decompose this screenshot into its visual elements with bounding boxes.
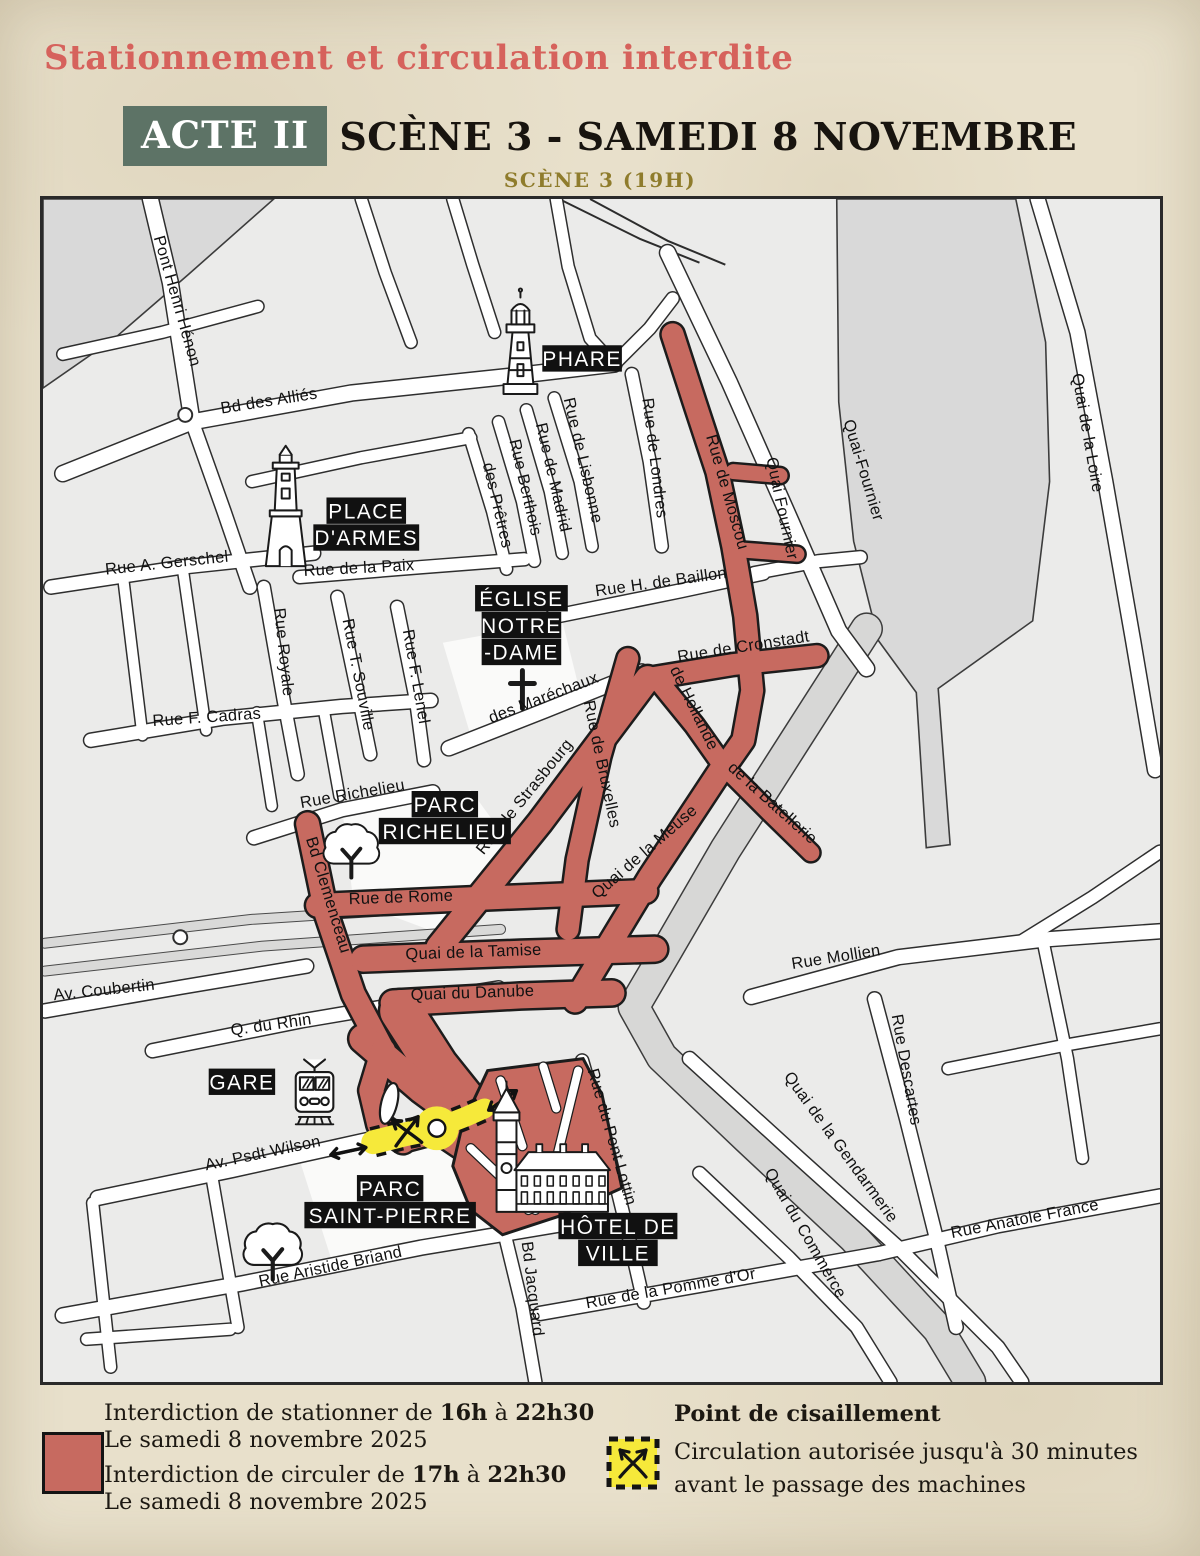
city-map: Pont Henri HénonBd des AlliésRue A. Gers…: [43, 199, 1160, 1382]
svg-text:-DAME: -DAME: [484, 642, 559, 665]
scene-heading: SCÈNE 3 - SAMEDI 8 NOVEMBRE: [339, 106, 1077, 166]
svg-text:RICHELIEU: RICHELIEU: [382, 821, 507, 844]
junction-circle: [173, 930, 187, 944]
shear-point-icon: [606, 1436, 660, 1490]
junction-circle: [178, 408, 192, 422]
svg-text:PHARE: PHARE: [542, 348, 621, 371]
subtitle-row: ACTE II SCÈNE 3 - SAMEDI 8 NOVEMBRE: [0, 106, 1200, 166]
svg-text:NOTRE: NOTRE: [481, 615, 562, 638]
red-zone-swatch: [42, 1432, 104, 1494]
red-zone-legend-text: Interdiction de stationner de 16h à 22h3…: [104, 1400, 604, 1524]
legend-no-driving-line: Interdiction de circuler de 17h à 22h30: [104, 1462, 604, 1489]
svg-text:SAINT-PIERRE: SAINT-PIERRE: [309, 1205, 472, 1228]
street-label: Rue de Rome: [348, 887, 453, 909]
shear-point-line2: avant le passage des machines: [674, 1469, 1154, 1502]
place-label: ÉGLISENOTRE-DAME: [475, 585, 568, 665]
shear-point-title: Point de cisaillement: [674, 1401, 941, 1427]
svg-text:ÉGLISE: ÉGLISE: [479, 588, 563, 611]
svg-text:D'ARMES: D'ARMES: [314, 527, 418, 550]
legend-no-parking-line: Interdiction de stationner de 16h à 22h3…: [104, 1400, 604, 1427]
map-panel: Pont Henri HénonBd des AlliésRue A. Gers…: [40, 196, 1163, 1385]
svg-text:HÔTEL DE: HÔTEL DE: [560, 1216, 676, 1239]
place-label: GARE: [209, 1069, 275, 1095]
act-badge: ACTE II: [123, 106, 327, 166]
svg-text:PARC: PARC: [414, 794, 476, 817]
shear-point-legend-text: Circulation autorisée jusqu'à 30 minutes…: [674, 1436, 1154, 1501]
shear-point-line1: Circulation autorisée jusqu'à 30 minutes: [674, 1436, 1154, 1469]
svg-text:PARC: PARC: [359, 1178, 421, 1201]
notice-page: Stationnement et circulation interdite A…: [0, 0, 1200, 1556]
legend-no-driving-date: Le samedi 8 novembre 2025: [104, 1489, 604, 1516]
page-title: Stationnement et circulation interdite: [44, 38, 793, 78]
svg-text:GARE: GARE: [209, 1071, 274, 1094]
roundabout: [428, 1120, 445, 1137]
svg-text:PLACE: PLACE: [328, 500, 404, 523]
svg-text:VILLE: VILLE: [586, 1243, 650, 1266]
scene-subheading: SCÈNE 3 (19H): [0, 168, 1200, 192]
legend-no-parking-date: Le samedi 8 novembre 2025: [104, 1427, 604, 1454]
place-label: PHARE: [542, 345, 622, 371]
